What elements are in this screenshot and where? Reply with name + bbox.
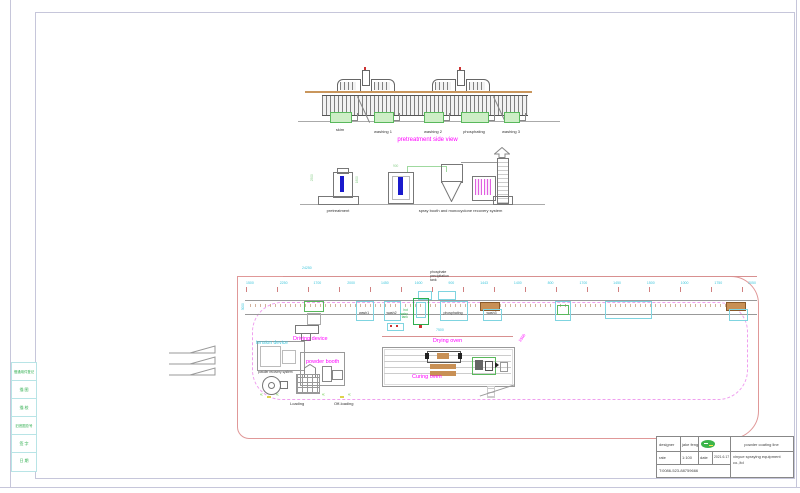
tension-inner [260,346,281,367]
dim-value: 1500 [647,281,655,285]
tb-line [657,451,793,452]
precip-tank [438,291,456,300]
chevron: « [260,393,263,399]
drying-oven-label: Drying oven [382,338,513,344]
plan-tank-label: wash2 [382,312,401,316]
overall-dim: 24250 [302,267,312,271]
tension-inner [282,350,296,364]
offloading-label: Off-loading [334,402,354,406]
curing-arrow [495,362,499,368]
conveyor-hangers [250,304,750,307]
dim-value: 2250 [280,281,288,285]
booth-part [322,366,332,382]
tb-line [657,464,730,465]
pump-dot [396,325,398,327]
dim-value: 1500 [246,281,254,285]
marker [267,396,271,398]
chevron: « [348,393,351,399]
designer-value: jake feng [682,442,698,447]
date-value: 2021.6.17 [714,455,729,459]
drawing-sheet: 借通用件登记 描 图 描 校 旧底图总号 签 字 日 期 [0,0,800,493]
filter-grid [296,374,320,394]
load-station [304,301,324,312]
curing-oven-label: Curing oven [412,374,442,380]
burner-cap [458,353,462,359]
rate-label: rate [659,455,666,460]
plan-tank-label: wash3 [481,312,502,316]
hot-tank-note: hot water tank [400,309,408,320]
load-station-box [307,313,321,325]
plan-tank [605,301,652,319]
dim-line [283,276,757,277]
dim-value: 1750 [714,281,722,285]
burner-core [437,353,449,359]
plan-tank [729,309,748,321]
station-box [557,305,569,315]
phosphate-tank-note: phosphate precipitation tank [430,271,449,283]
loading-label: Loading [290,402,304,406]
oven-dim: 7500 [436,329,444,333]
dim-value: 1000 [681,281,689,285]
tension-device-label: tension device [256,341,288,347]
flow-arrow-icon [168,344,216,354]
recovery-cyclone-core [268,382,275,389]
heater-bar [430,364,456,369]
chevron: « [322,393,325,399]
dim-value: 900 [448,281,454,285]
product-name: powder coating line [731,442,792,447]
title-block: designer jake feng powder coating line r… [656,436,794,478]
logo-dash [704,443,708,444]
powder-recovery-label: powder recovery system [258,371,293,375]
date-label: date [700,455,708,460]
dim-value: 800 [548,281,554,285]
dim-value: 1450 [613,281,621,285]
curing-motor [475,360,483,370]
dim-value: 1700 [579,281,587,285]
rate-value: 1:100 [682,455,692,460]
dim-value: 1700 [313,281,321,285]
dim-value: 1450 [381,281,389,285]
flow-arrow-icon [168,366,216,376]
marker [340,396,344,398]
dim-value: 2050 [748,281,756,285]
plan-tank-label: wash1 [354,312,374,316]
dim-ticks [246,287,756,292]
hot-water-inner [416,302,426,318]
curing-part [500,362,508,372]
designer-label: designer [659,442,674,447]
dim-value: 1443 [480,281,488,285]
pump-dot [390,325,392,327]
tb-line [680,437,681,464]
logo-dash [709,445,713,446]
flow-arrow-icon [168,355,216,365]
company-name: xinyue spraying equipment co.,ltd [733,454,791,465]
dim-row: 1500 2250 1700 2000 1450 1600 900 1443 1… [246,281,756,285]
dim-value: 1400 [514,281,522,285]
oven-dim-line [382,336,513,337]
chevron: « [276,393,279,399]
dim-value: 2000 [347,281,355,285]
curing-part [485,361,493,371]
recovery-outlet [280,381,288,389]
company-logo [701,440,715,448]
plan-view: 24250 1500 2250 1700 2000 1450 1600 900 … [0,0,800,493]
tb-line [712,451,713,464]
phone-number: T:0086-523-88759666 [659,468,698,473]
burner-cap [425,353,429,359]
booth-part [332,370,343,380]
plan-tank-label: phosphating [438,312,468,316]
dim-value: 1600 [415,281,423,285]
hot-water-valve [419,325,422,328]
